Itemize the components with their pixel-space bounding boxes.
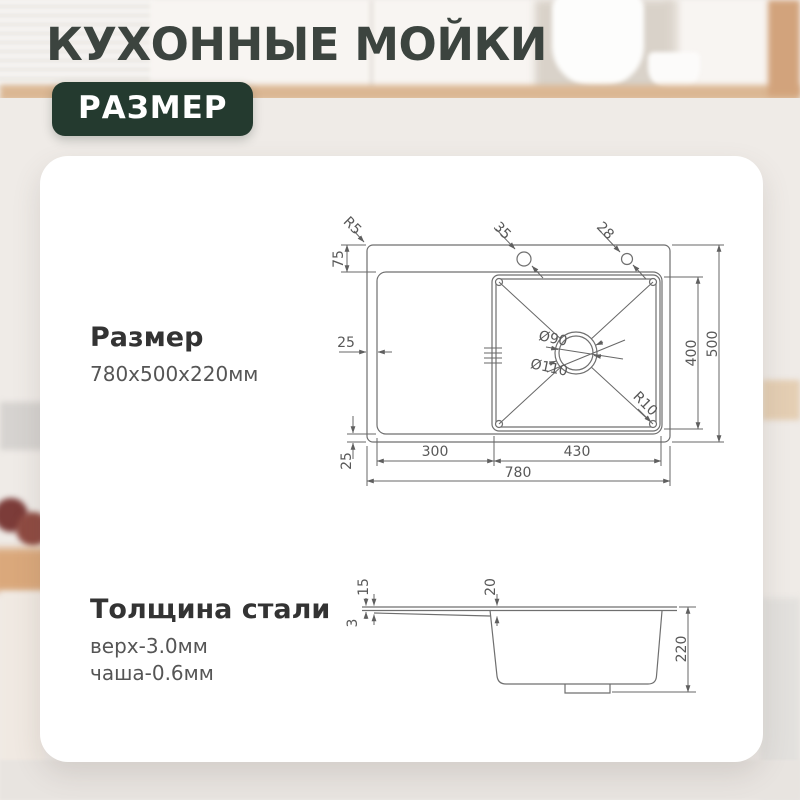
drain-stub <box>565 684 610 693</box>
rim-plate <box>362 607 677 611</box>
dim-label-220: 220 <box>674 636 690 663</box>
dim-label-75: 75 <box>331 250 347 268</box>
dim-label-28: 28 <box>593 219 617 243</box>
dim-label-430: 430 <box>564 444 591 460</box>
dim-label-35: 35 <box>490 219 514 243</box>
dim-label-400: 400 <box>684 340 700 367</box>
technical-drawing: R5 75 35 28 25 25 Ø90 Ø110 R10 400 500 3… <box>0 0 800 800</box>
ext-25-bottom <box>347 434 376 442</box>
dim-label-3: 3 <box>345 619 361 628</box>
faucet-hole-right <box>622 254 633 265</box>
faucet-hole-left <box>517 252 531 266</box>
dim-label-300: 300 <box>422 444 449 460</box>
dim-label-drain-90: Ø90 <box>537 328 569 350</box>
sink-top-view: R5 75 35 28 25 25 Ø90 Ø110 R10 400 500 3… <box>331 214 724 486</box>
dim-label-20: 20 <box>483 578 499 596</box>
sink-side-view: 15 3 20 220 <box>345 578 696 693</box>
dim-label-500: 500 <box>705 331 721 358</box>
product-infographic: КУХОННЫЕ МОЙКИ РАЗМЕР Размер 780x500x220… <box>0 0 800 800</box>
leader-drain-110-arrow <box>596 342 603 345</box>
bowl-profile <box>490 610 662 684</box>
dim-label-25-left: 25 <box>337 335 355 351</box>
rim-inner-outline <box>377 272 662 434</box>
dim-label-780: 780 <box>505 465 532 481</box>
dim-label-15: 15 <box>356 578 372 596</box>
overflow-ticks <box>484 348 502 363</box>
wing-underside <box>374 613 490 616</box>
dim-label-25-bottom: 25 <box>339 452 355 470</box>
dim-label-r5: R5 <box>340 214 364 238</box>
